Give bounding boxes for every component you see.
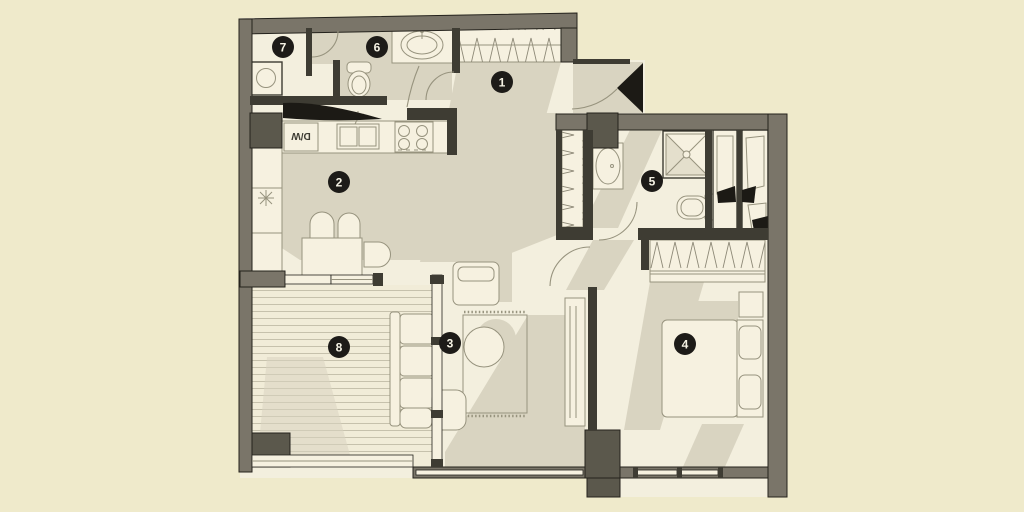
- bathroom-sink-icon: [593, 143, 623, 189]
- corridor-wardrobe: [562, 130, 583, 227]
- bedroom-window: [637, 470, 677, 475]
- right-wall: [768, 114, 787, 497]
- floorplan-page: D/W: [0, 0, 1024, 512]
- balcony-corner-wall: [240, 271, 285, 287]
- svg-text:7: 7: [280, 41, 287, 55]
- balcony-window: [285, 275, 331, 284]
- exterior-ledge: [620, 478, 768, 497]
- badge-room-4: 4: [674, 333, 696, 355]
- badge-room-5: 5: [641, 170, 663, 192]
- boiler-icon: [258, 190, 274, 206]
- svg-text:4: 4: [682, 338, 689, 352]
- balcony-rail-bottom: [252, 455, 413, 467]
- coffee-table: [464, 327, 504, 367]
- shower-icon: [663, 131, 710, 178]
- badge-room-3: 3: [439, 332, 461, 354]
- dining-table: [302, 238, 362, 278]
- badge-room-6: 6: [366, 36, 388, 58]
- floorplan-drawing: D/W: [0, 0, 1024, 512]
- svg-text:3: 3: [447, 337, 454, 351]
- pillar-base: [587, 478, 620, 497]
- entry-step-wall: [561, 28, 577, 62]
- svg-text:6: 6: [374, 41, 381, 55]
- bed: [662, 320, 763, 417]
- svg-text:2: 2: [336, 176, 343, 190]
- pillar: [250, 113, 282, 148]
- living-window: [416, 470, 583, 475]
- bedroom-wardrobe: [650, 240, 765, 282]
- badge-room-1: 1: [491, 71, 513, 93]
- tv-unit: [565, 298, 585, 426]
- svg-text:8: 8: [336, 341, 343, 355]
- badge-room-2: 2: [328, 171, 350, 193]
- badge-room-8: 8: [328, 336, 350, 358]
- laundry-room: [251, 62, 282, 95]
- dining-chair: [338, 213, 360, 238]
- pillar: [585, 430, 620, 478]
- pillow: [739, 326, 761, 359]
- vanity-sink-icon: [392, 29, 454, 63]
- hall-wardrobe: [458, 28, 561, 62]
- entry-lintel: [573, 59, 630, 64]
- badge-room-7: 7: [272, 36, 294, 58]
- svg-text:5: 5: [649, 175, 656, 189]
- pillow: [739, 375, 761, 409]
- armchair: [453, 262, 499, 305]
- glass-partition: [588, 287, 597, 430]
- dining-chair: [310, 212, 334, 238]
- washing-machine-icon: [251, 62, 282, 95]
- dishwasher-label: D/W: [291, 130, 311, 141]
- left-wall: [239, 19, 252, 472]
- nightstand: [739, 292, 763, 317]
- bedroom-window: [681, 470, 718, 475]
- svg-text:1: 1: [499, 76, 506, 90]
- dining-chair: [364, 242, 391, 267]
- balcony-rail-right: [430, 275, 444, 467]
- toilet-icon: [347, 62, 371, 97]
- kitchen-tall-cabinet: [252, 148, 282, 274]
